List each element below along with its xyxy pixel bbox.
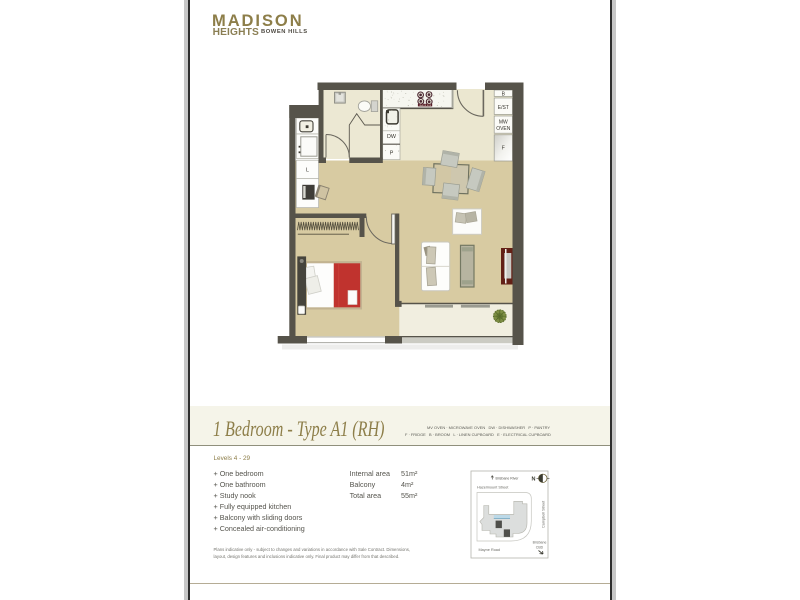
svg-text:Campbell Street: Campbell Street bbox=[541, 500, 545, 528]
svg-text:F: F bbox=[502, 146, 505, 152]
svg-text:P: P bbox=[390, 151, 394, 157]
svg-text:CBD: CBD bbox=[536, 546, 544, 550]
svg-text:L: L bbox=[306, 168, 309, 174]
svg-text:Hazelmount Street: Hazelmount Street bbox=[477, 486, 509, 490]
svg-text:Brisbane: Brisbane bbox=[533, 541, 547, 545]
svg-text:MW: MW bbox=[499, 120, 508, 126]
svg-text:Mayne Road: Mayne Road bbox=[479, 548, 501, 552]
svg-text:E/ST: E/ST bbox=[498, 105, 509, 111]
svg-text:Brisbane River: Brisbane River bbox=[496, 477, 520, 481]
svg-text:N: N bbox=[532, 477, 536, 483]
svg-text:OVEN: OVEN bbox=[496, 126, 511, 132]
